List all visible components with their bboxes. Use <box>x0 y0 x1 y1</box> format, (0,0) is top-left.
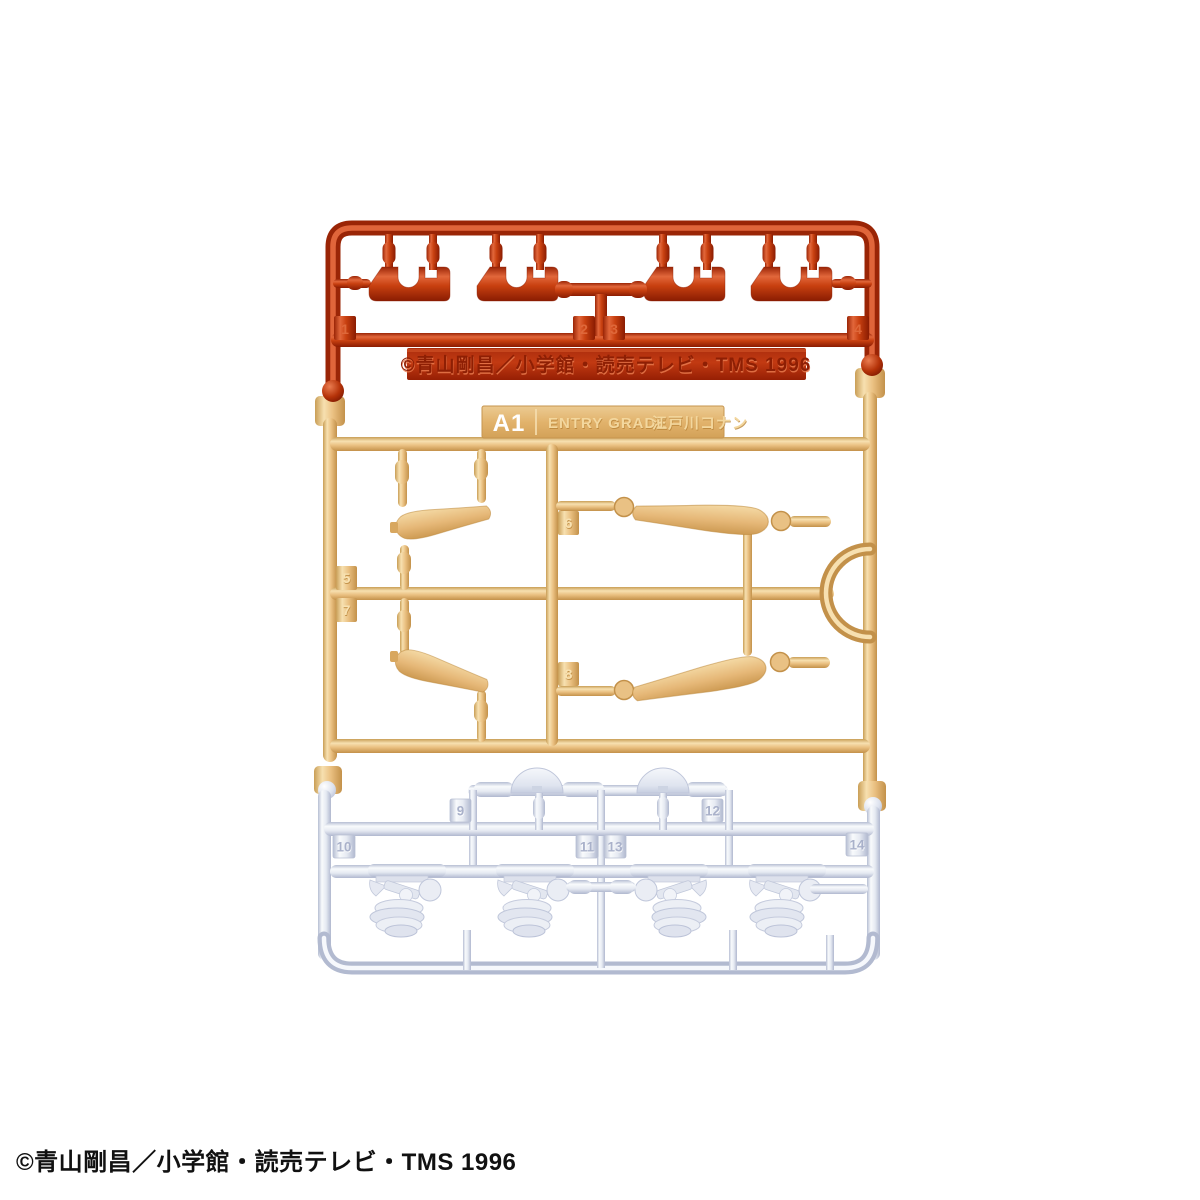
tan-part-5-limb <box>394 499 493 542</box>
tan-rail-right <box>863 392 877 790</box>
white-shoe-part-4 <box>748 864 826 937</box>
white-lower-gate-3 <box>826 935 834 970</box>
runner-label-plate: A1 ENTRY GRADE ENTRY GRADE 江戸川コナン 江戸川コナン <box>482 406 749 438</box>
tag-5: 5 <box>343 570 351 586</box>
red-ball-left <box>322 380 344 402</box>
red-t-piece <box>555 281 647 336</box>
white-runner: 9 9 12 12 10 10 11 11 13 13 14 14 <box>314 766 886 970</box>
tan-rail-bottom <box>330 739 870 753</box>
tan-runner: 5 5 7 7 6 6 8 8 A1 ENTRY GRADE ENTRY GRA… <box>315 368 885 790</box>
white-rod-right <box>810 884 868 894</box>
dome-right-notch <box>658 786 668 792</box>
white-lower-gate-2 <box>729 930 737 970</box>
white-subrail-pill-1 <box>474 782 514 797</box>
red-runner: 1 2 3 4 ©青山剛昌／小学館・読売テレビ・TMS 1996 ©青山剛昌／小… <box>322 228 883 402</box>
runner-illustration: 5 5 7 7 6 6 8 8 A1 ENTRY GRADE ENTRY GRA… <box>0 0 1200 1200</box>
red-copyright-bar: ©青山剛昌／小学館・読売テレビ・TMS 1996 ©青山剛昌／小学館・読売テレビ… <box>401 348 812 380</box>
tan-part-8-limb <box>630 653 769 709</box>
white-shoe-part-1 <box>368 864 446 937</box>
tan-part-6-limb <box>632 499 769 537</box>
label-series: ENTRY GRADE <box>548 415 667 432</box>
tag-4: 4 <box>854 321 862 337</box>
red-stub-left-pill <box>347 276 363 290</box>
tag-9: 9 <box>457 804 465 819</box>
red-part-1-plate <box>369 267 450 301</box>
red-gates <box>383 234 820 270</box>
tag-6: 6 <box>565 515 573 531</box>
product-photo: 5 5 7 7 6 6 8 8 A1 ENTRY GRADE ENTRY GRA… <box>0 0 1200 1200</box>
red-stub-right-pill <box>840 276 856 290</box>
tag-13: 13 <box>607 840 623 855</box>
label-character: 江戸川コナン <box>652 414 748 432</box>
tag-3: 3 <box>610 321 618 337</box>
tan-rail-top <box>330 437 870 451</box>
tan-part-7-tab <box>390 651 398 662</box>
white-rod-pill-2 <box>610 880 634 894</box>
white-shoe-part-3 <box>630 864 708 937</box>
tan-rail-inner-vertical <box>743 528 752 656</box>
white-lower-gate-1 <box>463 930 471 970</box>
red-part-4-plate <box>751 267 832 301</box>
molded-copyright: ©青山剛昌／小学館・読売テレビ・TMS 1996 <box>401 353 812 376</box>
white-shoe-part-2 <box>496 864 574 937</box>
tag-8: 8 <box>565 666 573 682</box>
tan-part-7-limb <box>392 646 492 700</box>
tan-part-5-tab <box>390 522 398 533</box>
tag-1: 1 <box>341 321 349 337</box>
red-ball-right <box>861 354 883 376</box>
tag-7: 7 <box>343 602 351 618</box>
tag-2: 2 <box>580 321 588 337</box>
tan-rail-center-vertical <box>546 444 558 746</box>
dome-left-notch <box>532 786 542 792</box>
label-code: A1 <box>493 410 526 437</box>
photo-copyright-caption: ©青山剛昌／小学館・読売テレビ・TMS 1996 <box>16 1142 516 1177</box>
white-subrail-pill-3 <box>686 782 726 797</box>
red-part-3-plate <box>644 267 725 301</box>
tag-14: 14 <box>849 838 865 853</box>
label-divider <box>535 409 537 435</box>
white-rod-pill-1 <box>568 880 592 894</box>
tag-12: 12 <box>705 804 720 819</box>
tag-11: 11 <box>580 840 595 855</box>
tag-10: 10 <box>336 840 351 855</box>
red-part-2-plate <box>477 267 558 301</box>
